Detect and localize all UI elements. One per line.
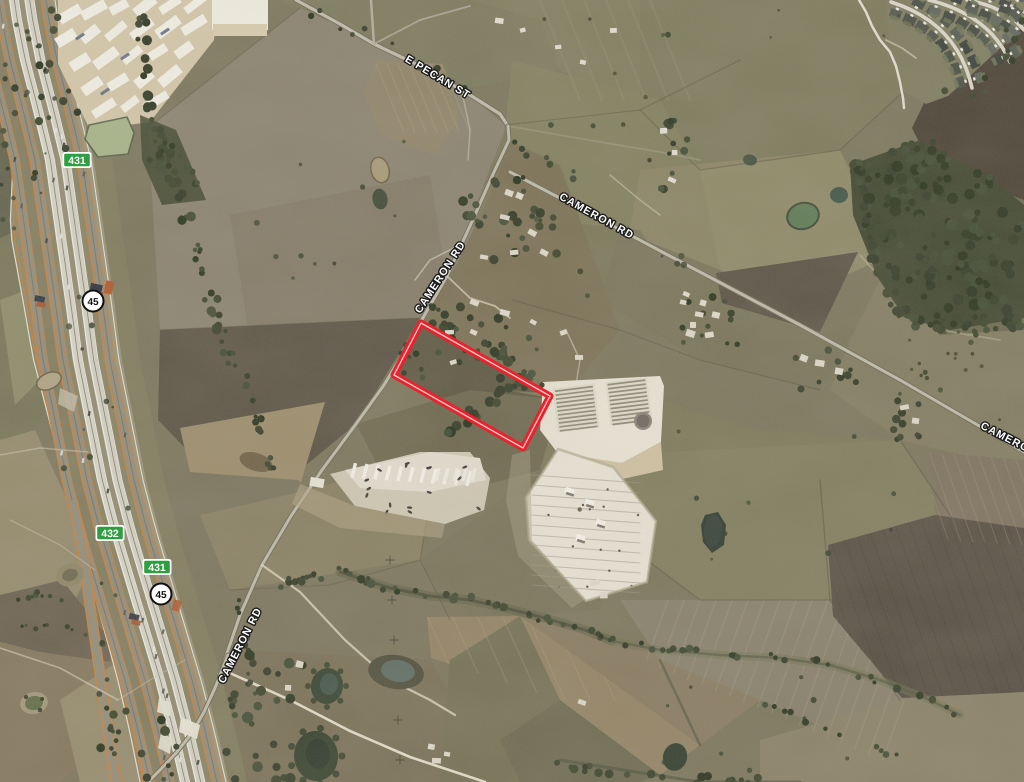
svg-text:431: 431 bbox=[148, 562, 166, 574]
svg-text:431: 431 bbox=[68, 155, 86, 167]
svg-text:45: 45 bbox=[155, 590, 167, 601]
svg-text:45: 45 bbox=[87, 297, 99, 308]
svg-text:432: 432 bbox=[101, 528, 119, 540]
